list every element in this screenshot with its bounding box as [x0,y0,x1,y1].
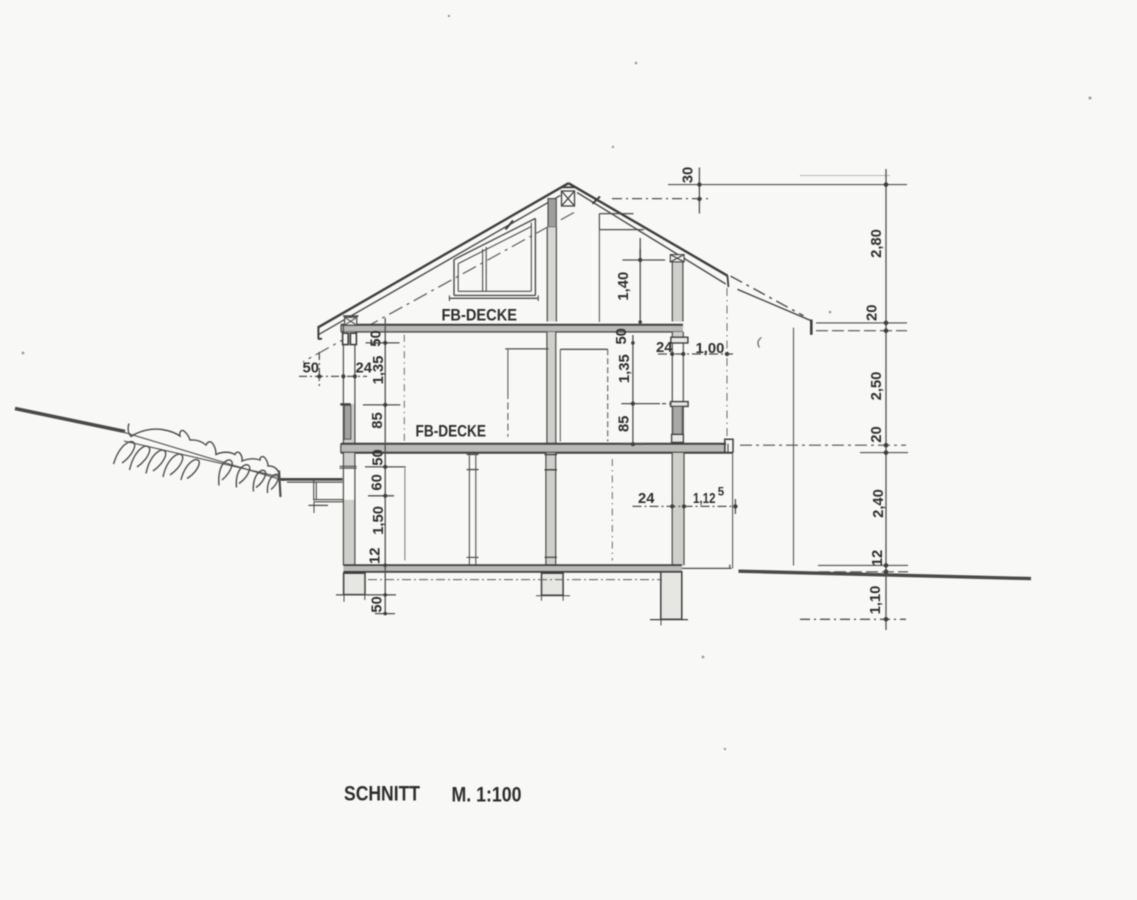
svg-text:20: 20 [865,304,881,320]
svg-text:50: 50 [303,360,319,376]
svg-text:1,00: 1,00 [696,341,725,357]
svg-text:FB-DECKE: FB-DECKE [442,307,518,325]
svg-text:50: 50 [614,328,630,344]
svg-text:24: 24 [638,491,655,507]
svg-text:M. 1:100: M. 1:100 [452,782,522,806]
svg-text:2,50: 2,50 [869,372,885,401]
svg-text:85: 85 [370,412,386,428]
svg-text:20: 20 [869,426,885,442]
svg-text:30: 30 [680,167,696,183]
svg-text:24: 24 [656,340,673,356]
svg-text:2,40: 2,40 [871,489,887,518]
svg-text:50: 50 [368,330,384,346]
svg-text:2,80: 2,80 [869,229,885,258]
svg-text:12: 12 [870,550,886,566]
svg-text:1,12: 1,12 [693,491,716,507]
svg-text:60: 60 [370,474,386,490]
svg-text:1,35: 1,35 [617,354,633,383]
svg-text:SCHNITT: SCHNITT [344,781,420,805]
svg-text:5: 5 [718,487,725,499]
svg-text:85: 85 [617,416,633,432]
svg-text:1,10: 1,10 [868,586,884,615]
svg-text:1,35: 1,35 [371,356,387,385]
svg-text:50: 50 [369,596,385,612]
svg-text:50: 50 [371,449,387,465]
svg-text:1,40: 1,40 [616,272,632,301]
svg-text:1,50: 1,50 [371,506,387,535]
svg-text:12: 12 [367,548,383,564]
svg-text:FB-DECKE: FB-DECKE [416,423,487,441]
